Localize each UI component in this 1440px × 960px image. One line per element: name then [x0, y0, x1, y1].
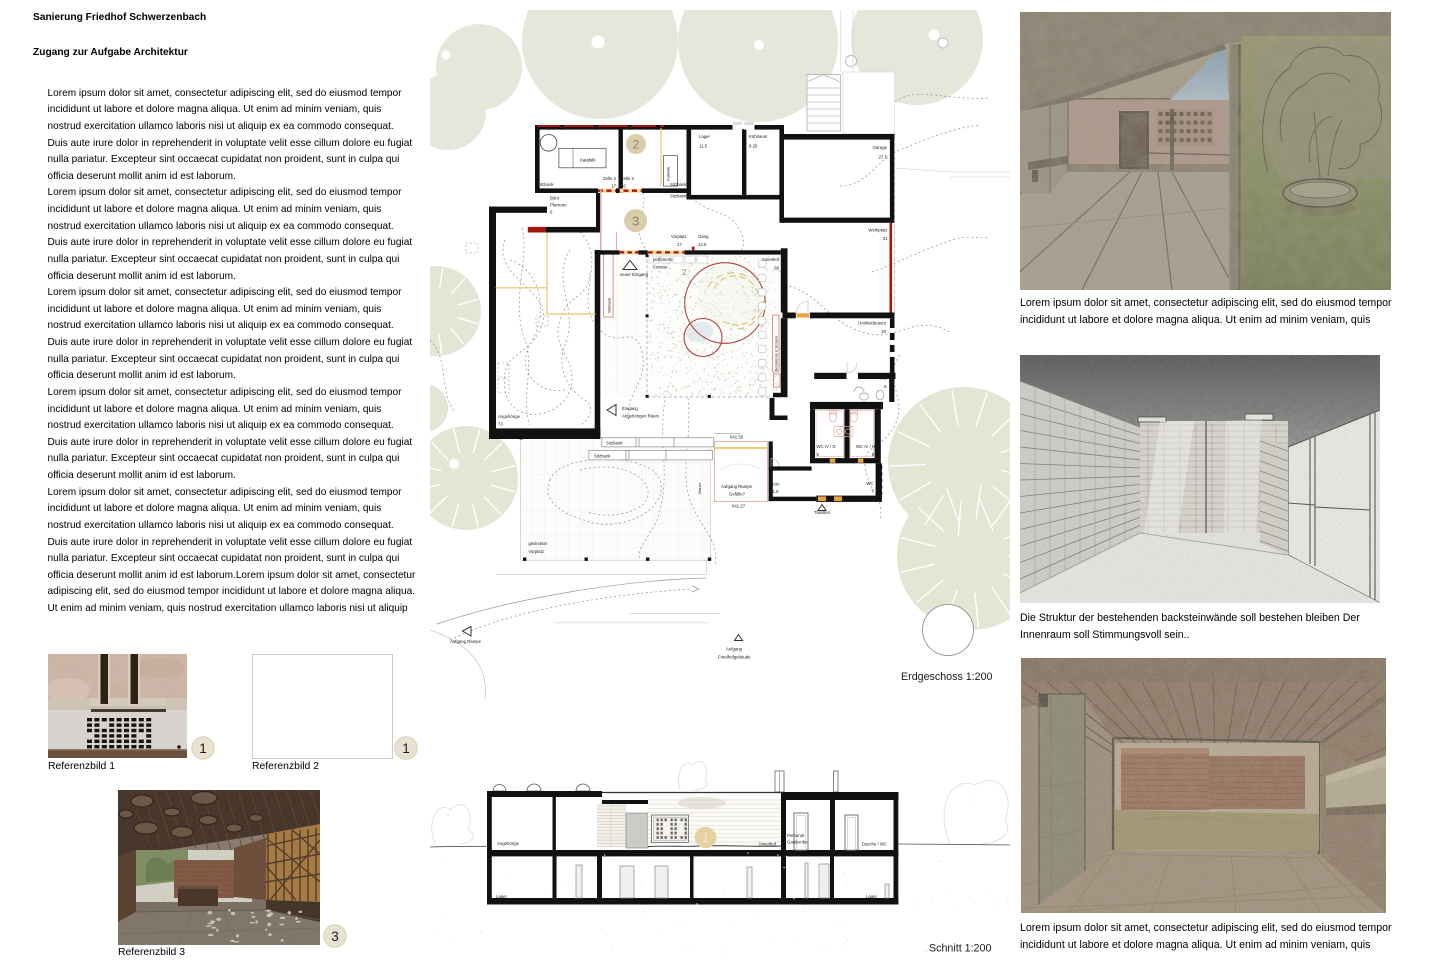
svg-text:Lager: Lager [698, 898, 710, 903]
svg-text:gedeckter: gedeckter [528, 541, 547, 546]
svg-text:Garderobe: Garderobe [787, 840, 808, 845]
svg-text:1: 1 [402, 741, 410, 756]
svg-text:Aufgang: Aufgang [726, 647, 743, 652]
svg-text:perforierte: perforierte [653, 257, 673, 262]
svg-text:Umkleideraum: Umkleideraum [858, 321, 886, 326]
svg-text:Angehörigen Räum: Angehörigen Räum [622, 414, 659, 419]
svg-text:Katafalk: Katafalk [666, 167, 671, 181]
svg-text:Innenhof: Innenhof [762, 257, 780, 262]
svg-text:Lager: Lager [699, 134, 711, 139]
svg-text:Schnitt 1:200: Schnitt 1:200 [929, 943, 991, 955]
svg-text:31: 31 [883, 236, 888, 241]
svg-text:neuer Eingang: neuer Eingang [620, 272, 649, 277]
svg-text:17: 17 [677, 242, 682, 247]
svg-text:11.5: 11.5 [771, 489, 780, 494]
svg-text:Lager: Lager [605, 898, 617, 903]
svg-text:Angehörige: Angehörige [498, 414, 521, 419]
svg-text:Büro: Büro [550, 196, 560, 201]
svg-text:Lager: Lager [496, 894, 508, 899]
svg-text:1: 1 [199, 741, 207, 756]
svg-text:Katafalk: Katafalk [580, 158, 596, 163]
svg-text:641.27: 641.27 [732, 504, 746, 509]
svg-text:Bestattende & Sitzbank: Bestattende & Sitzbank [774, 335, 778, 371]
svg-text:Zelle 2: Zelle 2 [621, 176, 635, 181]
svg-text:2: 2 [633, 138, 640, 152]
svg-text:Sitzbank: Sitzbank [670, 182, 687, 187]
svg-text:Garage: Garage [873, 145, 888, 150]
svg-text:5: 5 [817, 452, 820, 457]
svg-text:Angehörige: Angehörige [497, 841, 520, 846]
svg-text:Mauer: Mauer [697, 482, 702, 494]
svg-text:20: 20 [881, 329, 886, 334]
svg-text:Eingang: Eingang [622, 406, 638, 411]
svg-text:13.5: 13.5 [698, 242, 707, 247]
svg-text:Sitzbank: Sitzbank [537, 182, 554, 187]
svg-text:Werkplatz: Werkplatz [868, 228, 887, 233]
svg-text:Lager: Lager [866, 894, 878, 899]
svg-text:16: 16 [621, 184, 626, 189]
svg-text:641.55: 641.55 [730, 435, 744, 440]
svg-text:27.5: 27.5 [879, 155, 888, 160]
svg-text:5: 5 [872, 452, 875, 457]
svg-text:WC: WC [879, 376, 886, 381]
svg-text:WC IV / H: WC IV / H [856, 444, 875, 449]
svg-text:Vorplatz: Vorplatz [671, 234, 687, 239]
svg-text:3: 3 [331, 929, 339, 944]
svg-text:Dusche / WC: Dusche / WC [862, 842, 887, 847]
svg-text:Pfarrerin: Pfarrerin [550, 203, 567, 208]
svg-text:Sitzbank: Sitzbank [607, 298, 612, 313]
svg-text:Friedhofgebäude: Friedhofgebäude [718, 655, 751, 660]
svg-text:Büro: Büro [771, 482, 781, 487]
svg-text:8.25: 8.25 [749, 144, 758, 149]
svg-text:Erdgeschoss 1:200: Erdgeschoss 1:200 [901, 671, 993, 683]
svg-text:1: 1 [702, 831, 709, 845]
svg-text:Gefälle?: Gefälle? [729, 492, 746, 497]
svg-text:73: 73 [498, 422, 503, 427]
svg-text:Sitzbank: Sitzbank [670, 194, 687, 199]
svg-text:Kühlraum: Kühlraum [749, 134, 768, 139]
svg-text:WC: WC [866, 481, 873, 486]
svg-text:2: 2 [682, 268, 687, 277]
svg-text:11.5: 11.5 [699, 144, 708, 149]
svg-text:17: 17 [611, 184, 616, 189]
svg-text:66: 66 [774, 266, 779, 271]
svg-text:Personal: Personal [787, 833, 804, 838]
svg-text:Aufgang Rampe: Aufgang Rampe [450, 639, 482, 644]
svg-text:Innenhof: Innenhof [759, 842, 777, 847]
svg-text:Gang: Gang [698, 234, 709, 239]
svg-text:Zelle 2: Zelle 2 [603, 176, 617, 181]
svg-text:Vorplatz: Vorplatz [528, 549, 544, 554]
svg-text:Aufgang Rampe: Aufgang Rampe [721, 484, 753, 489]
svg-text:6: 6 [550, 210, 553, 215]
svg-text:5: 5 [884, 384, 887, 389]
svg-text:WC IV / D: WC IV / D [817, 444, 836, 449]
svg-text:Fenster: Fenster [653, 265, 668, 270]
svg-text:Sitzbank: Sitzbank [606, 441, 623, 446]
svg-text:Sitzbank: Sitzbank [594, 454, 611, 459]
svg-text:3: 3 [632, 214, 639, 229]
